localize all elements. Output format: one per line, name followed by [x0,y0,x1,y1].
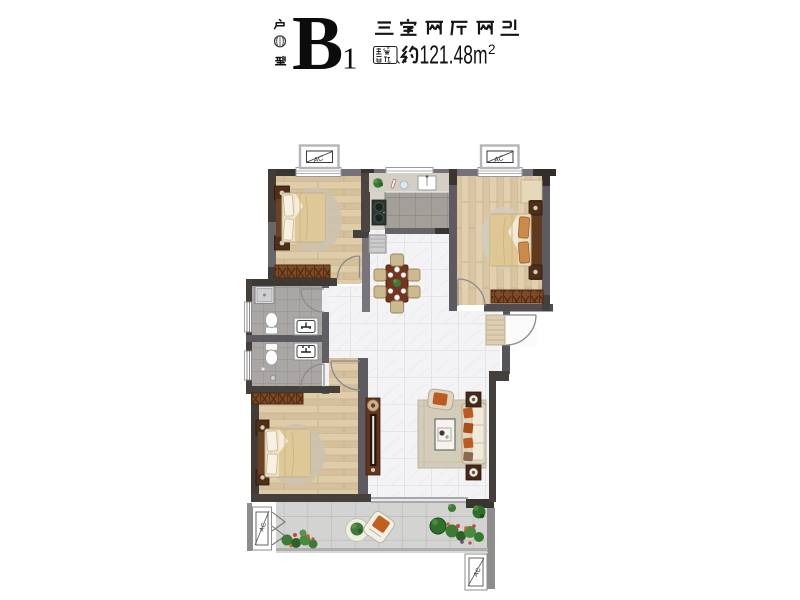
svg-text:121.48m: 121.48m [420,40,488,70]
svg-text:2: 2 [488,42,496,57]
svg-text:1: 1 [342,41,358,76]
svg-text:B: B [292,0,343,86]
